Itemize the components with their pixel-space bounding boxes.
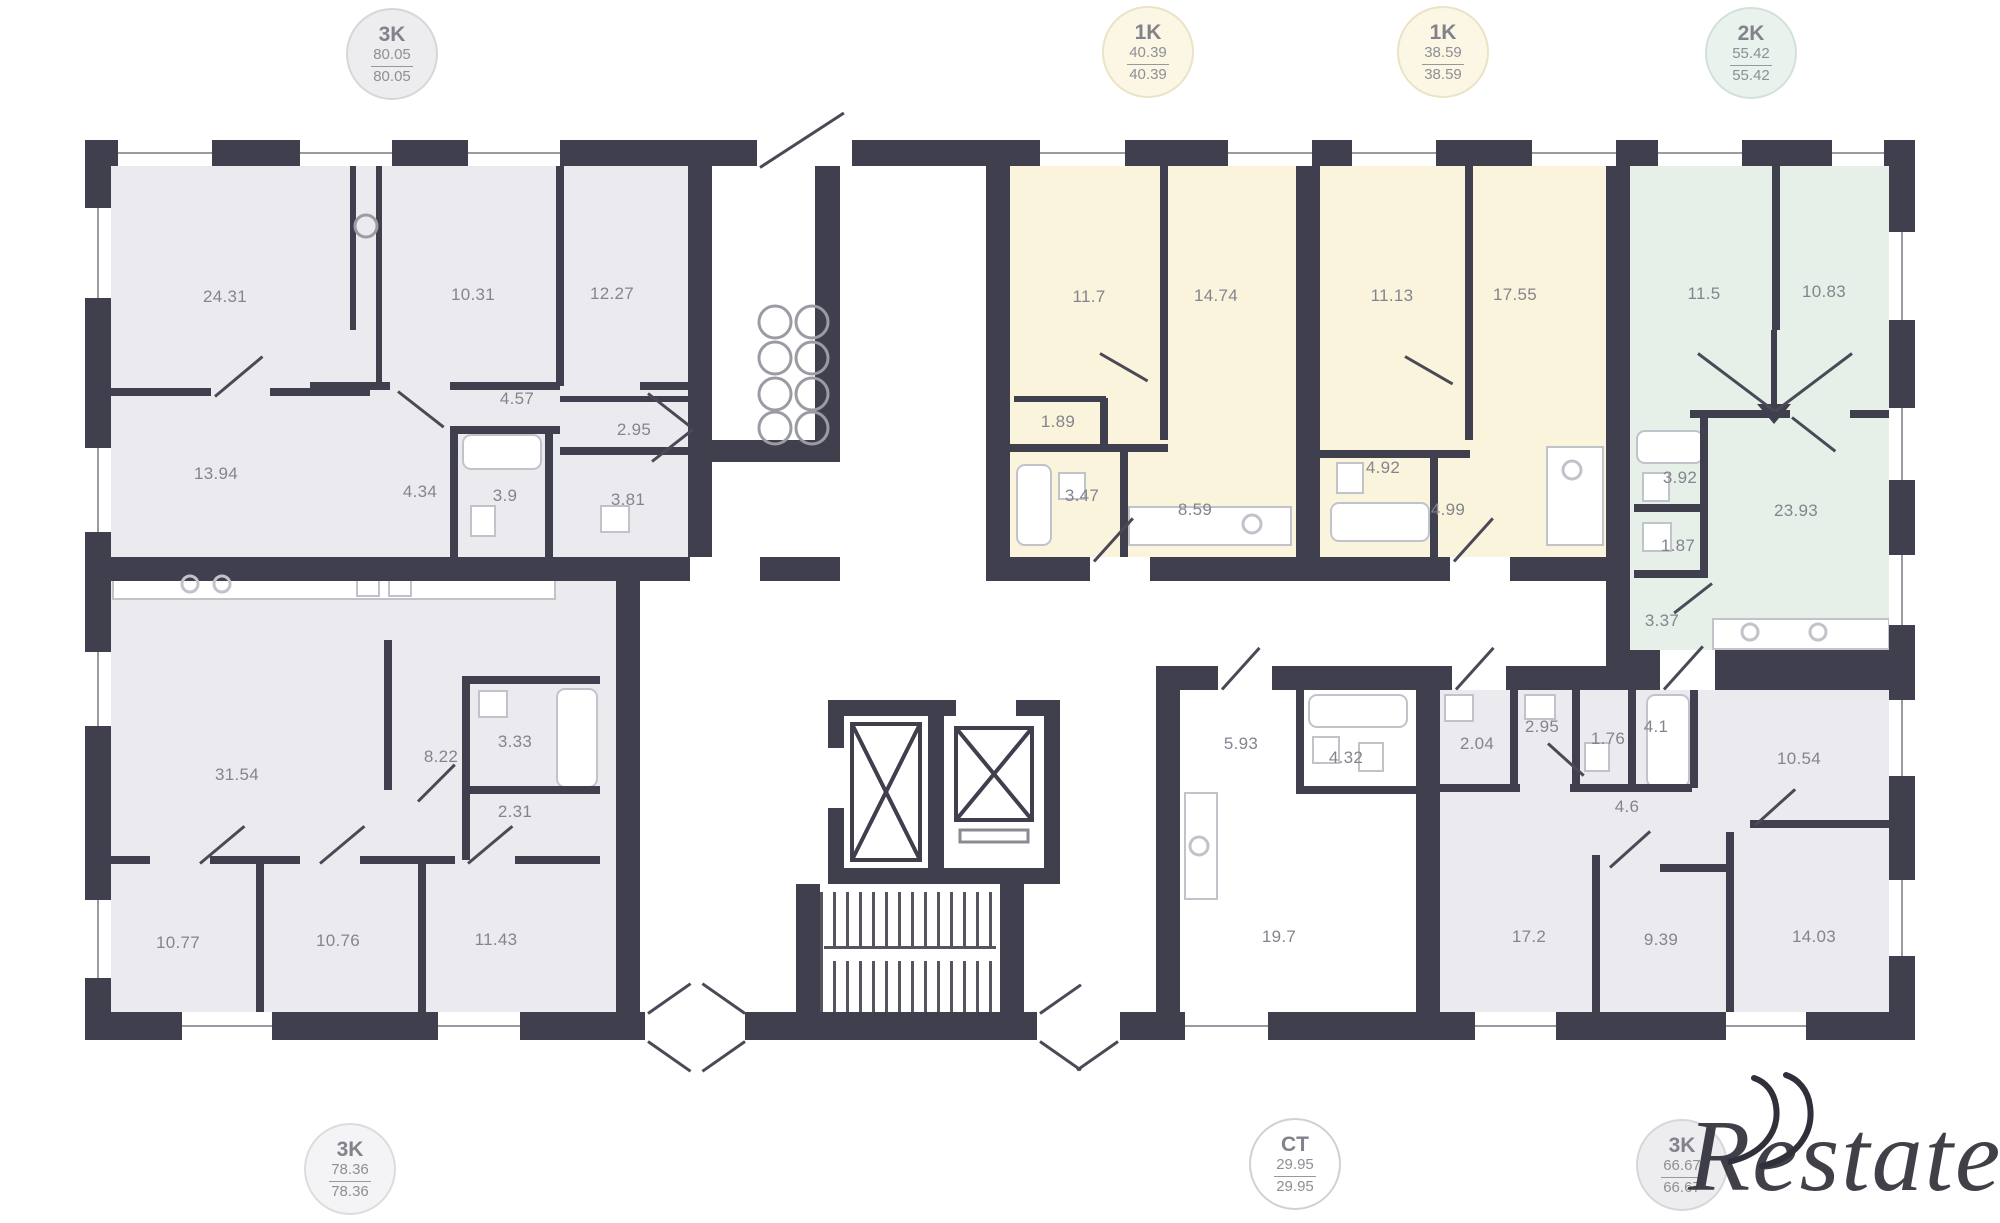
unit-type-label: CT xyxy=(1281,1133,1309,1156)
wall xyxy=(815,166,840,462)
room-area-label: 3.33 xyxy=(498,732,532,752)
door-swing xyxy=(1455,647,1495,691)
room-area-label: 9.39 xyxy=(1644,930,1678,950)
room-area-label: 19.7 xyxy=(1262,927,1296,947)
window xyxy=(1185,1012,1268,1040)
unit-area-living: 38.59 xyxy=(1424,65,1462,84)
room-area-label: 11.13 xyxy=(1371,286,1414,306)
wall xyxy=(85,1012,1915,1040)
window xyxy=(182,1012,272,1040)
room-area-label: 4.92 xyxy=(1366,458,1400,478)
room-area-label: 4.1 xyxy=(1644,717,1669,737)
floor-plan: 24.31 10.31 12.27 4.57 2.95 13.94 4.34 3… xyxy=(0,0,2000,1223)
room-area-label: 3.92 xyxy=(1663,468,1697,488)
room-area-label: 2.31 xyxy=(498,802,532,822)
window xyxy=(85,900,111,978)
room-area-label: 3.81 xyxy=(611,490,645,510)
unit-badge-1k-38: 1K 38.59 38.59 xyxy=(1397,6,1489,98)
entrance-opening xyxy=(1037,1012,1120,1040)
partition xyxy=(1634,570,1704,578)
room-area-label: 10.31 xyxy=(451,285,495,305)
window xyxy=(1889,408,1915,480)
unit-badge-3k-top: 3K 80.05 80.05 xyxy=(346,8,438,100)
room-area-label: 3.37 xyxy=(1645,611,1679,631)
unit-area-living: 80.05 xyxy=(373,67,411,86)
unit-area-total: 55.42 xyxy=(1730,45,1772,66)
room-area-label: 1.87 xyxy=(1661,536,1695,556)
partition xyxy=(1320,450,1470,458)
window xyxy=(85,448,111,532)
wall xyxy=(1715,650,1889,690)
window xyxy=(85,208,111,298)
toilet xyxy=(1336,462,1364,494)
room-area-label: 13.94 xyxy=(194,464,238,484)
entrance-door-swing xyxy=(647,982,691,1014)
partition xyxy=(1440,784,1520,792)
wall xyxy=(1150,557,1450,581)
room-area-label: 10.83 xyxy=(1802,282,1846,302)
entry-arrow-shaft xyxy=(1771,330,1777,406)
unit-area-living: 78.36 xyxy=(331,1182,369,1201)
room-area-label: 3.47 xyxy=(1065,486,1099,506)
partition xyxy=(455,426,560,434)
entrance-door-swing xyxy=(1039,1040,1082,1071)
toilet xyxy=(470,505,496,537)
window xyxy=(1532,140,1616,166)
entrance-door-swing xyxy=(647,1040,691,1072)
partition xyxy=(515,856,600,864)
room-area-label: 10.54 xyxy=(1777,749,1821,769)
unit-type-label: 1K xyxy=(1430,21,1457,44)
room-area-label: 1.89 xyxy=(1041,412,1075,432)
wall xyxy=(986,166,1010,557)
entrance-door-swing xyxy=(702,982,746,1014)
window xyxy=(1658,140,1742,166)
entrance-door-swing xyxy=(1039,984,1082,1015)
window xyxy=(1832,140,1884,166)
wall xyxy=(986,557,1090,581)
partition xyxy=(1700,418,1708,578)
partition xyxy=(1100,398,1108,444)
room-area-label: 1.76 xyxy=(1591,729,1625,749)
partition xyxy=(1296,786,1416,794)
room-area-label: 4.34 xyxy=(403,482,437,502)
partition xyxy=(270,388,370,396)
elevator-shaft-wall xyxy=(828,868,1060,884)
stair-wall xyxy=(796,884,820,1012)
wall xyxy=(712,440,840,462)
partition xyxy=(418,864,426,1012)
window xyxy=(300,140,392,166)
room-area-label: 11.5 xyxy=(1687,284,1720,304)
partition xyxy=(640,382,688,390)
window xyxy=(468,140,560,166)
elevator-shaft-wall xyxy=(928,716,944,868)
room-area-label: 8.22 xyxy=(424,747,458,767)
partition xyxy=(1726,832,1734,1012)
door-swing xyxy=(1663,645,1704,690)
partition xyxy=(1465,166,1473,440)
room-area-label: 12.27 xyxy=(590,284,634,304)
wall xyxy=(640,557,690,581)
unit-type-label: 3K xyxy=(379,23,406,46)
wall xyxy=(1156,666,1180,1012)
partition xyxy=(462,676,470,860)
bathtub xyxy=(1636,430,1704,464)
unit-type-label: 1K xyxy=(1135,21,1162,44)
unit-type-label: 3K xyxy=(337,1138,364,1161)
wall xyxy=(1606,166,1630,674)
unit-area-living: 29.95 xyxy=(1276,1177,1314,1196)
window xyxy=(1889,232,1915,320)
partition xyxy=(1010,444,1168,452)
stair-landing-rail xyxy=(824,946,996,961)
wall xyxy=(85,557,640,581)
unit-badge-3k-bottom-left: 3K 78.36 78.36 xyxy=(304,1123,396,1215)
entry-arrow-head xyxy=(1757,404,1791,424)
door-swing xyxy=(1221,647,1261,691)
room-area-label: 4.32 xyxy=(1329,748,1363,768)
room-area-label: 31.54 xyxy=(215,765,259,785)
washer xyxy=(1444,694,1474,722)
wall xyxy=(1506,666,1630,690)
bathtub xyxy=(556,688,598,788)
room-area-label: 2.95 xyxy=(617,420,651,440)
kitchen-counter xyxy=(1712,618,1890,650)
room-area-label: 11.43 xyxy=(475,930,518,950)
partition xyxy=(1570,784,1692,792)
partition xyxy=(1160,166,1168,440)
kitchen-counter xyxy=(1546,446,1604,546)
window xyxy=(1889,700,1915,776)
room-area-label: 10.77 xyxy=(156,933,200,953)
bathtub xyxy=(1646,694,1690,788)
entrance-opening xyxy=(645,1012,745,1040)
partition xyxy=(376,166,382,390)
partition xyxy=(1772,166,1780,330)
room-area-label: 2.04 xyxy=(1460,734,1494,754)
wall xyxy=(1510,557,1630,581)
window xyxy=(1040,140,1125,166)
partition xyxy=(256,864,264,1012)
unit-area-total: 78.36 xyxy=(329,1161,371,1182)
unit-type-label: 2K xyxy=(1738,22,1765,45)
stair-wall xyxy=(1000,884,1024,1012)
partition xyxy=(560,396,688,402)
partition xyxy=(1750,820,1889,828)
room-area-label: 2.95 xyxy=(1525,717,1559,737)
partition xyxy=(360,856,455,864)
unit-area-total: 29.95 xyxy=(1274,1156,1316,1177)
wall xyxy=(1630,650,1660,690)
room-area-label: 14.03 xyxy=(1792,927,1836,947)
room-area-label: 17.2 xyxy=(1512,927,1546,947)
elevator-shaft-wall xyxy=(1044,716,1060,868)
partition xyxy=(1592,855,1600,1012)
unit-area-total: 40.39 xyxy=(1127,44,1169,65)
window xyxy=(1228,140,1312,166)
room-area-label: 11.7 xyxy=(1072,287,1105,307)
partition xyxy=(556,166,564,386)
wall xyxy=(616,557,640,1012)
unit-badge-ct: CT 29.95 29.95 xyxy=(1249,1118,1341,1210)
bathtub xyxy=(1016,464,1052,546)
partition xyxy=(462,676,600,684)
room-area-label: 4.57 xyxy=(500,389,534,409)
room-area-label: 24.31 xyxy=(203,287,247,307)
elevator-car-icon xyxy=(852,724,920,860)
room-area-label: 3.9 xyxy=(493,486,518,506)
wall xyxy=(688,166,712,557)
watermark-text: Restate xyxy=(1688,1098,2000,1215)
room-area-label: 10.76 xyxy=(316,931,360,951)
partition xyxy=(111,388,211,396)
partition xyxy=(462,786,600,794)
wall xyxy=(1272,666,1452,690)
window xyxy=(1889,880,1915,956)
partition xyxy=(450,426,458,557)
elevator-shaft-wall xyxy=(1016,700,1060,716)
window xyxy=(118,140,212,166)
apartment-fill-1k-40 xyxy=(1010,166,1296,557)
window xyxy=(1726,1012,1806,1040)
window xyxy=(1352,140,1436,166)
room-area-label: 8.59 xyxy=(1178,500,1212,520)
unit-area-living: 40.39 xyxy=(1129,65,1167,84)
partition xyxy=(1120,452,1128,557)
room-area-label: 5.93 xyxy=(1224,734,1258,754)
entrance-door-swing xyxy=(1076,1040,1119,1071)
partition xyxy=(350,166,356,330)
wall xyxy=(760,557,840,581)
partition xyxy=(384,640,392,790)
partition xyxy=(1628,690,1636,788)
elevator-car-icon xyxy=(956,728,1032,842)
window xyxy=(1889,555,1915,625)
unit-area-living: 55.42 xyxy=(1732,66,1770,85)
room-area-label: 4.99 xyxy=(1431,500,1465,520)
partition xyxy=(1296,690,1304,790)
apartment-fill-3k-80 xyxy=(111,166,688,557)
elevator-shaft-wall xyxy=(828,700,956,716)
partition xyxy=(1014,396,1106,402)
room-area-label: 14.74 xyxy=(1194,286,1238,306)
partition xyxy=(1690,690,1698,788)
partition xyxy=(111,856,150,864)
unit-area-total: 80.05 xyxy=(371,46,413,67)
wall xyxy=(1296,166,1320,557)
partition xyxy=(545,434,553,557)
partition xyxy=(1850,410,1889,418)
unit-area-total: 38.59 xyxy=(1422,44,1464,65)
wall xyxy=(1416,666,1440,1012)
partition xyxy=(1634,504,1704,512)
sink xyxy=(478,690,508,718)
partition xyxy=(1510,690,1518,788)
entrance-opening xyxy=(757,140,852,166)
entrance-door-swing xyxy=(702,1040,746,1072)
room-area-label: 4.6 xyxy=(1615,797,1640,817)
kitchen-counter xyxy=(1184,792,1218,900)
bathtub xyxy=(1308,694,1408,728)
elevator-shaft-wall xyxy=(828,808,844,868)
room-area-label: 23.93 xyxy=(1774,501,1818,521)
elevator-shaft-wall xyxy=(828,716,844,748)
bathtub xyxy=(1330,502,1430,542)
partition xyxy=(1660,864,1730,872)
unit-badge-1k-40: 1K 40.39 40.39 xyxy=(1102,6,1194,98)
window xyxy=(438,1012,520,1040)
wall xyxy=(1180,666,1218,690)
partition xyxy=(210,856,300,864)
bathtub xyxy=(462,434,542,470)
window xyxy=(1475,1012,1556,1040)
room-area-label: 17.55 xyxy=(1493,285,1537,305)
window xyxy=(85,652,111,726)
unit-badge-2k: 2K 55.42 55.42 xyxy=(1705,7,1797,99)
